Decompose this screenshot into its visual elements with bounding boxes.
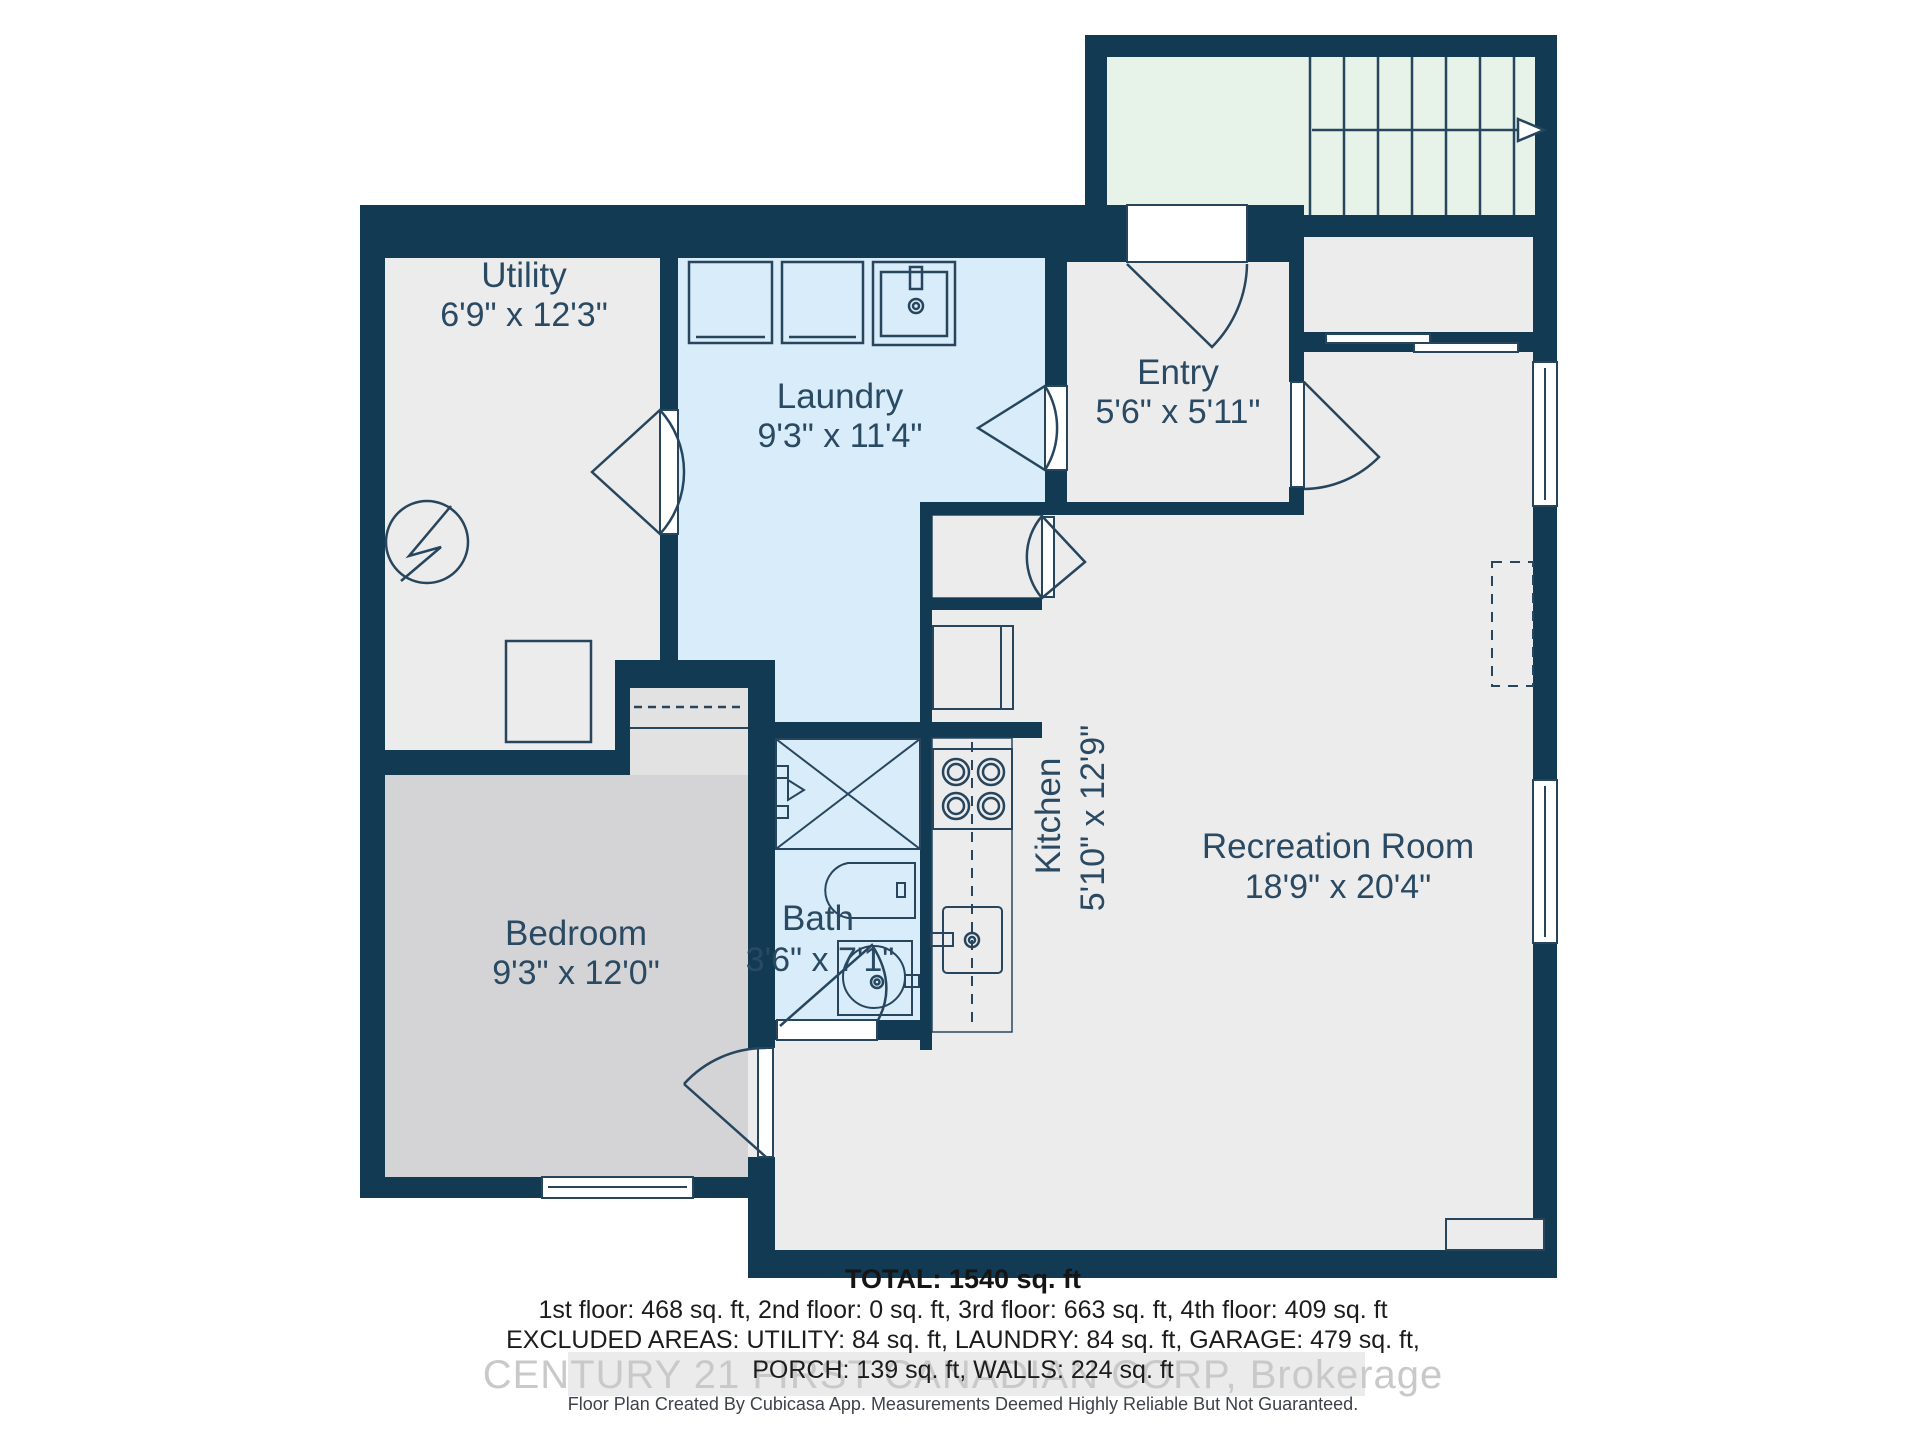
wall-entry-right-stub xyxy=(1289,487,1304,515)
disclaimer-text: Floor Plan Created By Cubicasa App. Meas… xyxy=(568,1394,1358,1414)
entry-dims: 5'6" x 5'11" xyxy=(1095,393,1260,431)
wall-bedroom-right xyxy=(748,660,775,1048)
utility-dims: 6'9" x 12'3" xyxy=(440,296,608,334)
entry-closet-floor xyxy=(932,515,1042,598)
bedroom-name: Bedroom xyxy=(505,914,647,953)
sliding-door-panel-2 xyxy=(1414,343,1518,352)
bath-name: Bath xyxy=(782,899,854,938)
recreation-dims: 18'9" x 20'4" xyxy=(1245,868,1431,906)
bedroom-closet-floor xyxy=(630,688,748,775)
entry-name: Entry xyxy=(1137,353,1219,392)
recreation-name: Recreation Room xyxy=(1202,827,1474,866)
recreation-window-lower xyxy=(1533,780,1557,943)
bedroom-window xyxy=(542,1177,693,1198)
sliding-door-panel-1 xyxy=(1326,334,1430,343)
entry-exterior-door-leaf xyxy=(1127,205,1247,262)
stairwell-floor xyxy=(1107,57,1535,215)
bath-door-leaf xyxy=(777,1020,877,1040)
laundry-name: Laundry xyxy=(777,377,904,416)
porch-walls-area-text: PORCH: 139 sq. ft, WALLS: 224 sq. ft xyxy=(752,1356,1174,1384)
hearth xyxy=(1446,1219,1544,1250)
wall-stairwell-top xyxy=(1085,35,1557,57)
wall-bath-top xyxy=(748,722,1042,738)
utility-door-leaf xyxy=(660,410,678,534)
wall-utility-bedroom xyxy=(360,750,630,775)
closet-door-leaf xyxy=(1042,517,1054,597)
wall-stairwell-right xyxy=(1535,35,1557,237)
recreation-window-upper xyxy=(1533,362,1557,506)
kitchen-name: Kitchen xyxy=(1029,758,1068,875)
floor-plan-page: Utility 6'9" x 12'3" Laundry 9'3" x 11'4… xyxy=(0,0,1920,1440)
excluded-area-text: EXCLUDED AREAS: UTILITY: 84 sq. ft, LAUN… xyxy=(506,1326,1420,1354)
wall-closet-top xyxy=(615,660,748,688)
floor-plan-drawing: Utility 6'9" x 12'3" Laundry 9'3" x 11'4… xyxy=(0,0,1920,1440)
wall-entry-left-upper xyxy=(1045,258,1067,386)
entry-rec-door-leaf xyxy=(1291,382,1304,487)
kitchen-dims: 5'10" x 12'9" xyxy=(1074,725,1112,911)
bedroom-dims: 9'3" x 12'0" xyxy=(492,954,660,992)
wall-kitchen-left xyxy=(920,502,932,1050)
total-area-text: TOTAL: 1540 sq. ft xyxy=(845,1264,1081,1294)
wall-stairwell-bottom-thin xyxy=(1304,215,1557,237)
wall-stairwell-left xyxy=(1085,35,1107,205)
wall-entry-closet-bottom xyxy=(932,598,1042,610)
floors-area-text: 1st floor: 468 sq. ft, 2nd floor: 0 sq. … xyxy=(538,1296,1387,1324)
utility-name: Utility xyxy=(481,256,567,295)
laundry-dims: 9'3" x 11'4" xyxy=(757,417,922,455)
bedroom-door-leaf xyxy=(758,1048,773,1157)
wall-bedroom-right-lower xyxy=(748,1157,775,1177)
wall-entry-bottom xyxy=(920,502,1304,515)
bath-dims: 3'6" x 7'1" xyxy=(746,941,895,979)
wall-top xyxy=(360,205,1085,258)
wall-left xyxy=(360,205,385,1198)
wall-entry-right xyxy=(1289,258,1304,382)
summary-block: CENTURY 21 FIRST CANADIAN CORP, Brokerag… xyxy=(483,1264,1444,1414)
